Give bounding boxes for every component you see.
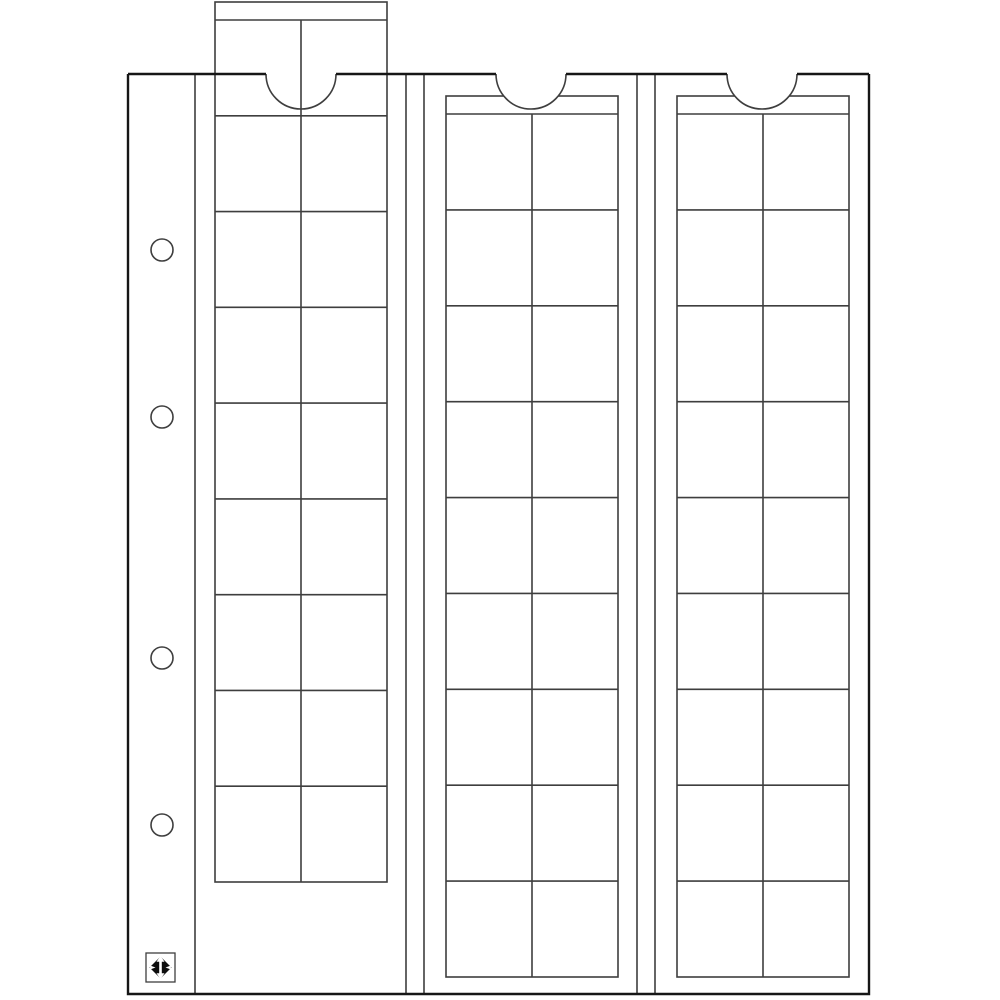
coin-sheet-illustration xyxy=(0,0,1000,1000)
binder-hole-3 xyxy=(151,647,173,669)
binder-hole-4 xyxy=(151,814,173,836)
diamond-arrow-logo-icon xyxy=(146,953,175,982)
binder-hole-1 xyxy=(151,239,173,261)
strip-1 xyxy=(215,2,387,882)
binder-hole-2 xyxy=(151,406,173,428)
strip-3 xyxy=(677,96,849,977)
strip-2 xyxy=(446,96,618,977)
coin-sheet-svg xyxy=(0,0,1000,1000)
